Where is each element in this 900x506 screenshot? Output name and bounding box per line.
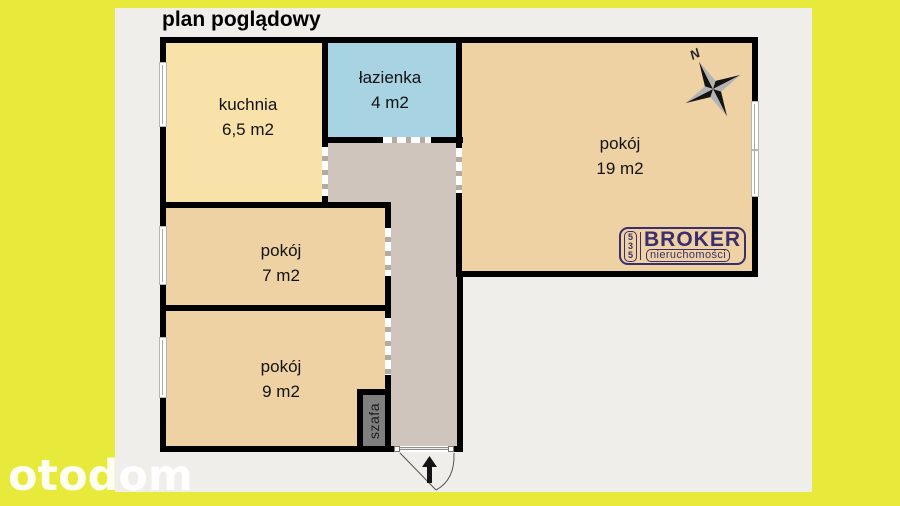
entrance-arrow-icon: [422, 456, 437, 483]
label-pokoj-19: pokój 19 m2: [596, 131, 643, 181]
closet-label: szafa: [366, 403, 382, 439]
room-area: 9 m2: [261, 379, 302, 404]
wall-bottom-left: [160, 446, 397, 452]
wall-pokoj19-bottom: [456, 271, 758, 277]
label-lazienka: łazienka 4 m2: [359, 65, 421, 115]
wall-pokoj7-pokoj9-divider: [160, 305, 391, 311]
room-area: 7 m2: [261, 263, 302, 288]
room-name: pokój: [596, 131, 643, 156]
room-name: pokój: [261, 354, 302, 379]
logo-digit: 5: [628, 251, 633, 260]
compass-icon: N: [667, 43, 759, 135]
window-pokoj9: [160, 338, 166, 397]
agency-logo: 5 3 5 BROKER nieruchomości: [619, 227, 746, 265]
otodom-watermark: otodom: [8, 451, 193, 501]
door-pokoj19: [456, 148, 462, 193]
logo-separator: [640, 232, 641, 260]
door-pokoj9: [385, 318, 391, 375]
corridor-lower: [391, 202, 457, 446]
plan-title: plan poglądowy: [162, 8, 321, 32]
room-name: łazienka: [359, 65, 421, 90]
room-name: pokój: [261, 238, 302, 263]
room-area: 6,5 m2: [219, 117, 278, 142]
agency-logo-phone-digits: 5 3 5: [624, 231, 637, 262]
compass-north-label: N: [687, 45, 703, 63]
corridor-upper: [328, 143, 457, 202]
room-name: kuchnia: [219, 92, 278, 117]
window-kitchen: [160, 63, 166, 126]
agency-logo-text: BROKER nieruchomości: [644, 230, 741, 262]
window-pokoj7: [160, 227, 166, 284]
room-area: 4 m2: [359, 90, 421, 115]
door-pokoj7: [385, 228, 391, 276]
door-kitchen: [322, 147, 328, 196]
closet-szafa: szafa: [363, 395, 385, 446]
agency-subtitle: nieruchomości: [646, 249, 730, 262]
floorplan-image: plan poglądowy szafa: [0, 0, 900, 506]
agency-name: BROKER: [644, 230, 741, 249]
wall-kitchen-bottom: [160, 202, 391, 208]
wall-corridor-right: [457, 277, 463, 452]
label-pokoj-7: pokój 7 m2: [261, 238, 302, 288]
room-area: 19 m2: [596, 156, 643, 181]
window-divider: [752, 149, 758, 151]
door-bathroom: [383, 137, 431, 143]
label-kuchnia: kuchnia 6,5 m2: [219, 92, 278, 142]
label-pokoj-9: pokój 9 m2: [261, 354, 302, 404]
